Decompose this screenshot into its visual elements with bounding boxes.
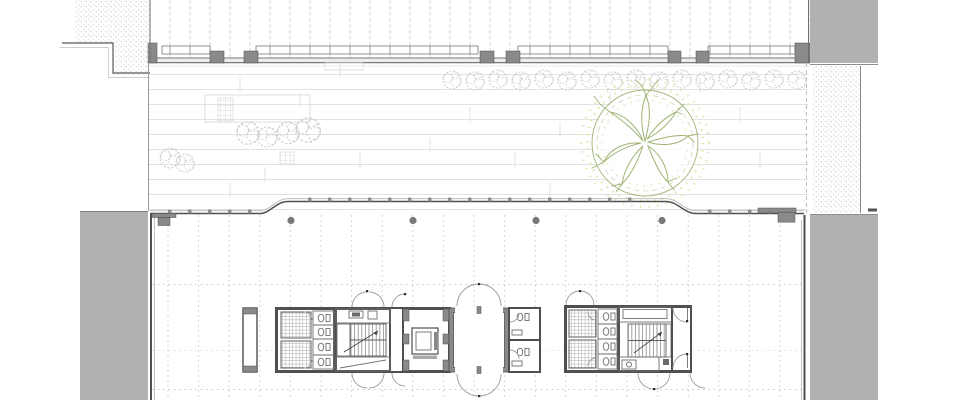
solid-block [810,0,878,63]
bench-planter [243,308,257,372]
column [532,217,539,224]
window-band [162,46,210,54]
door-opening [455,367,477,374]
floor-plan-canvas [0,0,960,400]
threshold-detail [152,214,176,218]
central-block [449,307,540,374]
facade-pier [210,51,224,63]
window-band [708,46,795,54]
column [409,217,416,224]
tree-grate [280,152,294,164]
facade-pier [480,51,494,63]
tiled-shower-room [569,310,596,337]
window-band [518,46,668,54]
bench-cap [243,366,257,372]
door-opening [481,367,503,374]
elevator-sill [413,356,437,360]
neighbor-mass-bottom-right [810,209,878,400]
floor-plan-page [0,0,960,400]
facade-pier [668,51,681,63]
threshold-detail [158,218,170,226]
plaza [148,63,808,213]
tiled-shower-room [569,340,596,368]
stippled-ground [812,66,860,213]
door-opening [455,307,477,314]
neighbor-block-top-left [60,0,150,78]
west-party-wall-mass [80,211,148,400]
threshold-detail [778,212,795,222]
facade-pier [696,51,709,63]
threshold-detail [758,208,796,212]
sink [352,313,360,317]
neighbor-mass-top-right [810,0,878,65]
solid-block [810,215,878,400]
column [287,217,294,224]
door-opening [481,307,503,314]
tiled-shower-room [281,341,311,368]
edge-mullion-ticks [168,210,252,214]
shaft [663,359,669,365]
edge-mullion-ticks [300,198,648,202]
facade-pier [506,51,520,63]
lightwell-opening [454,313,505,368]
bench-cap [243,308,257,314]
window-band [256,46,478,54]
datum-mark [868,209,877,212]
facade-pier [244,51,258,63]
tiled-shower-room [281,312,311,338]
right-stipple-strip [812,66,861,213]
tree-grate [218,98,233,122]
facade-corner-pier [795,43,810,63]
counterweight [434,332,439,350]
column [658,217,665,224]
core-right [565,306,691,372]
